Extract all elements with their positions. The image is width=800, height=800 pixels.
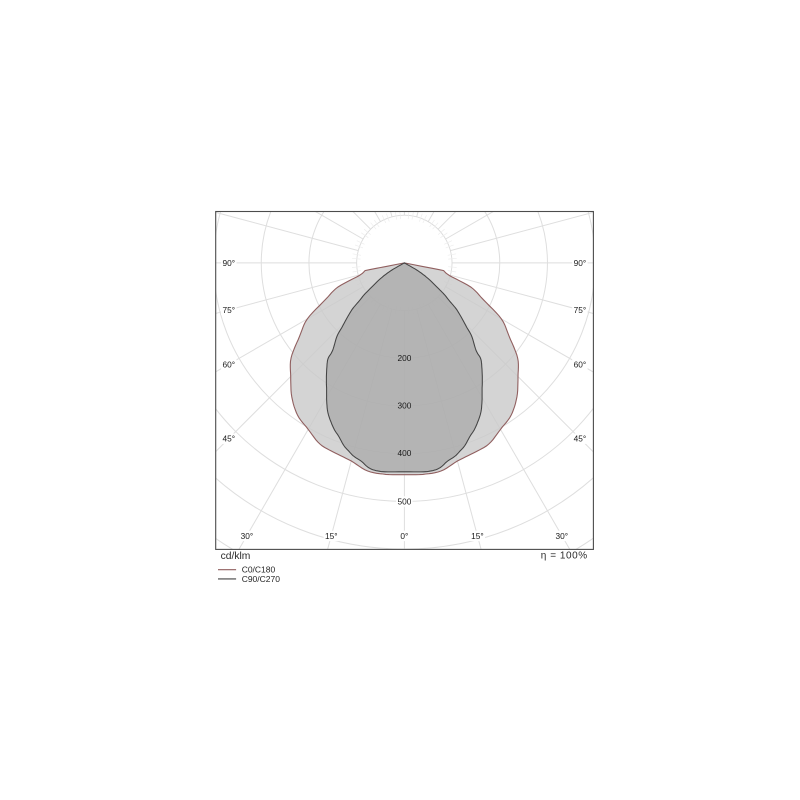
- svg-text:30°: 30°: [241, 531, 254, 541]
- svg-text:η = 100%: η = 100%: [541, 550, 588, 561]
- svg-text:45°: 45°: [223, 434, 236, 444]
- svg-text:90°: 90°: [223, 258, 236, 268]
- svg-text:500: 500: [397, 496, 411, 506]
- svg-text:cd/klm: cd/klm: [221, 551, 251, 562]
- svg-text:400: 400: [397, 448, 411, 458]
- svg-text:300: 300: [397, 401, 411, 411]
- svg-text:75°: 75°: [223, 305, 236, 315]
- svg-text:60°: 60°: [574, 359, 587, 369]
- svg-text:90°: 90°: [574, 258, 587, 268]
- svg-text:60°: 60°: [223, 359, 236, 369]
- svg-text:30°: 30°: [556, 531, 569, 541]
- svg-text:C90/C270: C90/C270: [242, 574, 281, 584]
- svg-text:45°: 45°: [574, 434, 587, 444]
- svg-text:0°: 0°: [400, 531, 408, 541]
- svg-text:75°: 75°: [574, 305, 587, 315]
- svg-text:15°: 15°: [325, 531, 338, 541]
- svg-text:200: 200: [397, 353, 411, 363]
- svg-text:15°: 15°: [471, 531, 484, 541]
